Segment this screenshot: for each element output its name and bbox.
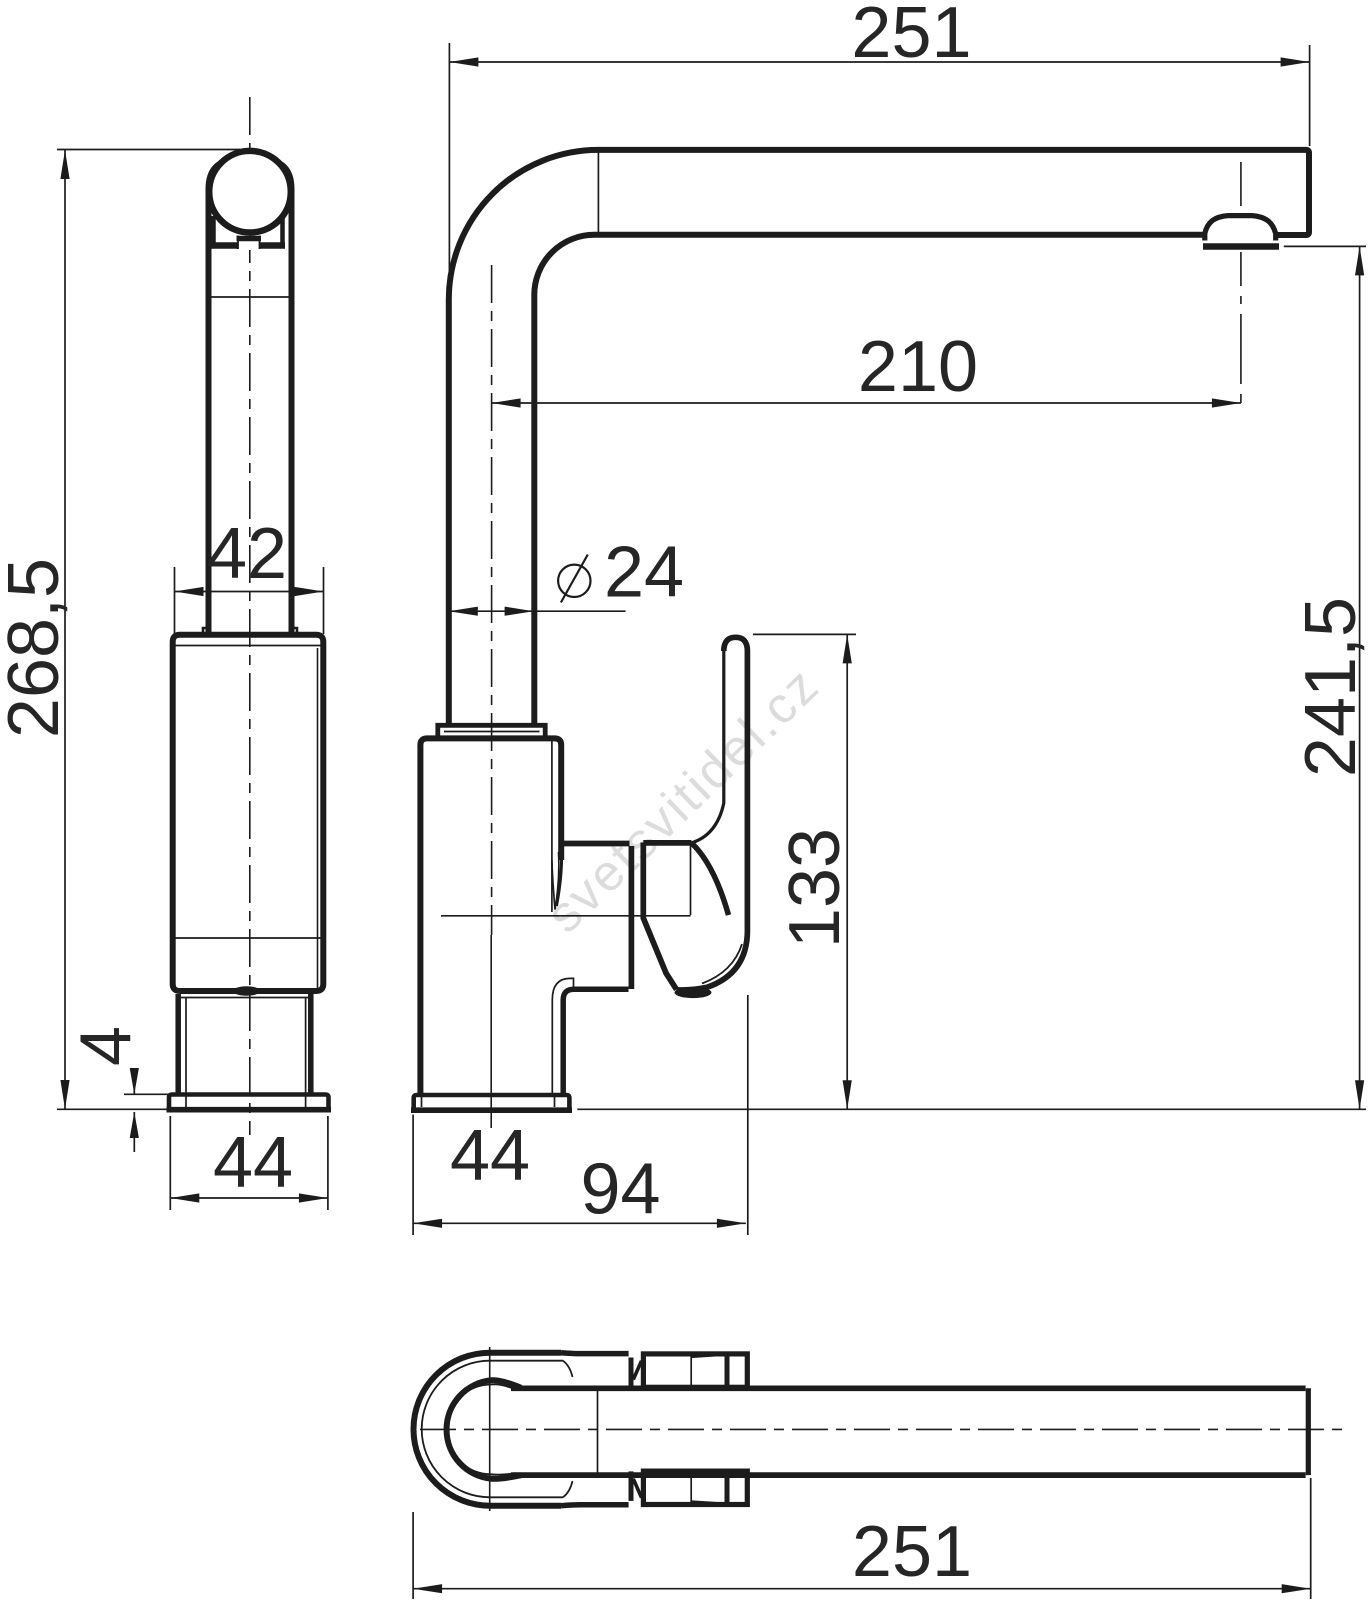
svg-text:44: 44 (450, 1116, 530, 1196)
svg-text:268,5: 268,5 (0, 558, 74, 738)
svg-text:133: 133 (775, 828, 855, 948)
svg-text:24: 24 (604, 533, 684, 613)
svg-text:94: 94 (580, 1150, 660, 1230)
svg-text:241,5: 241,5 (1291, 597, 1371, 777)
svg-text:251: 251 (851, 0, 971, 73)
svg-text:251: 251 (852, 1512, 972, 1592)
svg-text:210: 210 (858, 327, 978, 407)
svg-text:42: 42 (207, 514, 287, 594)
svg-text:44: 44 (213, 1123, 293, 1203)
svg-text:4: 4 (67, 1026, 147, 1066)
